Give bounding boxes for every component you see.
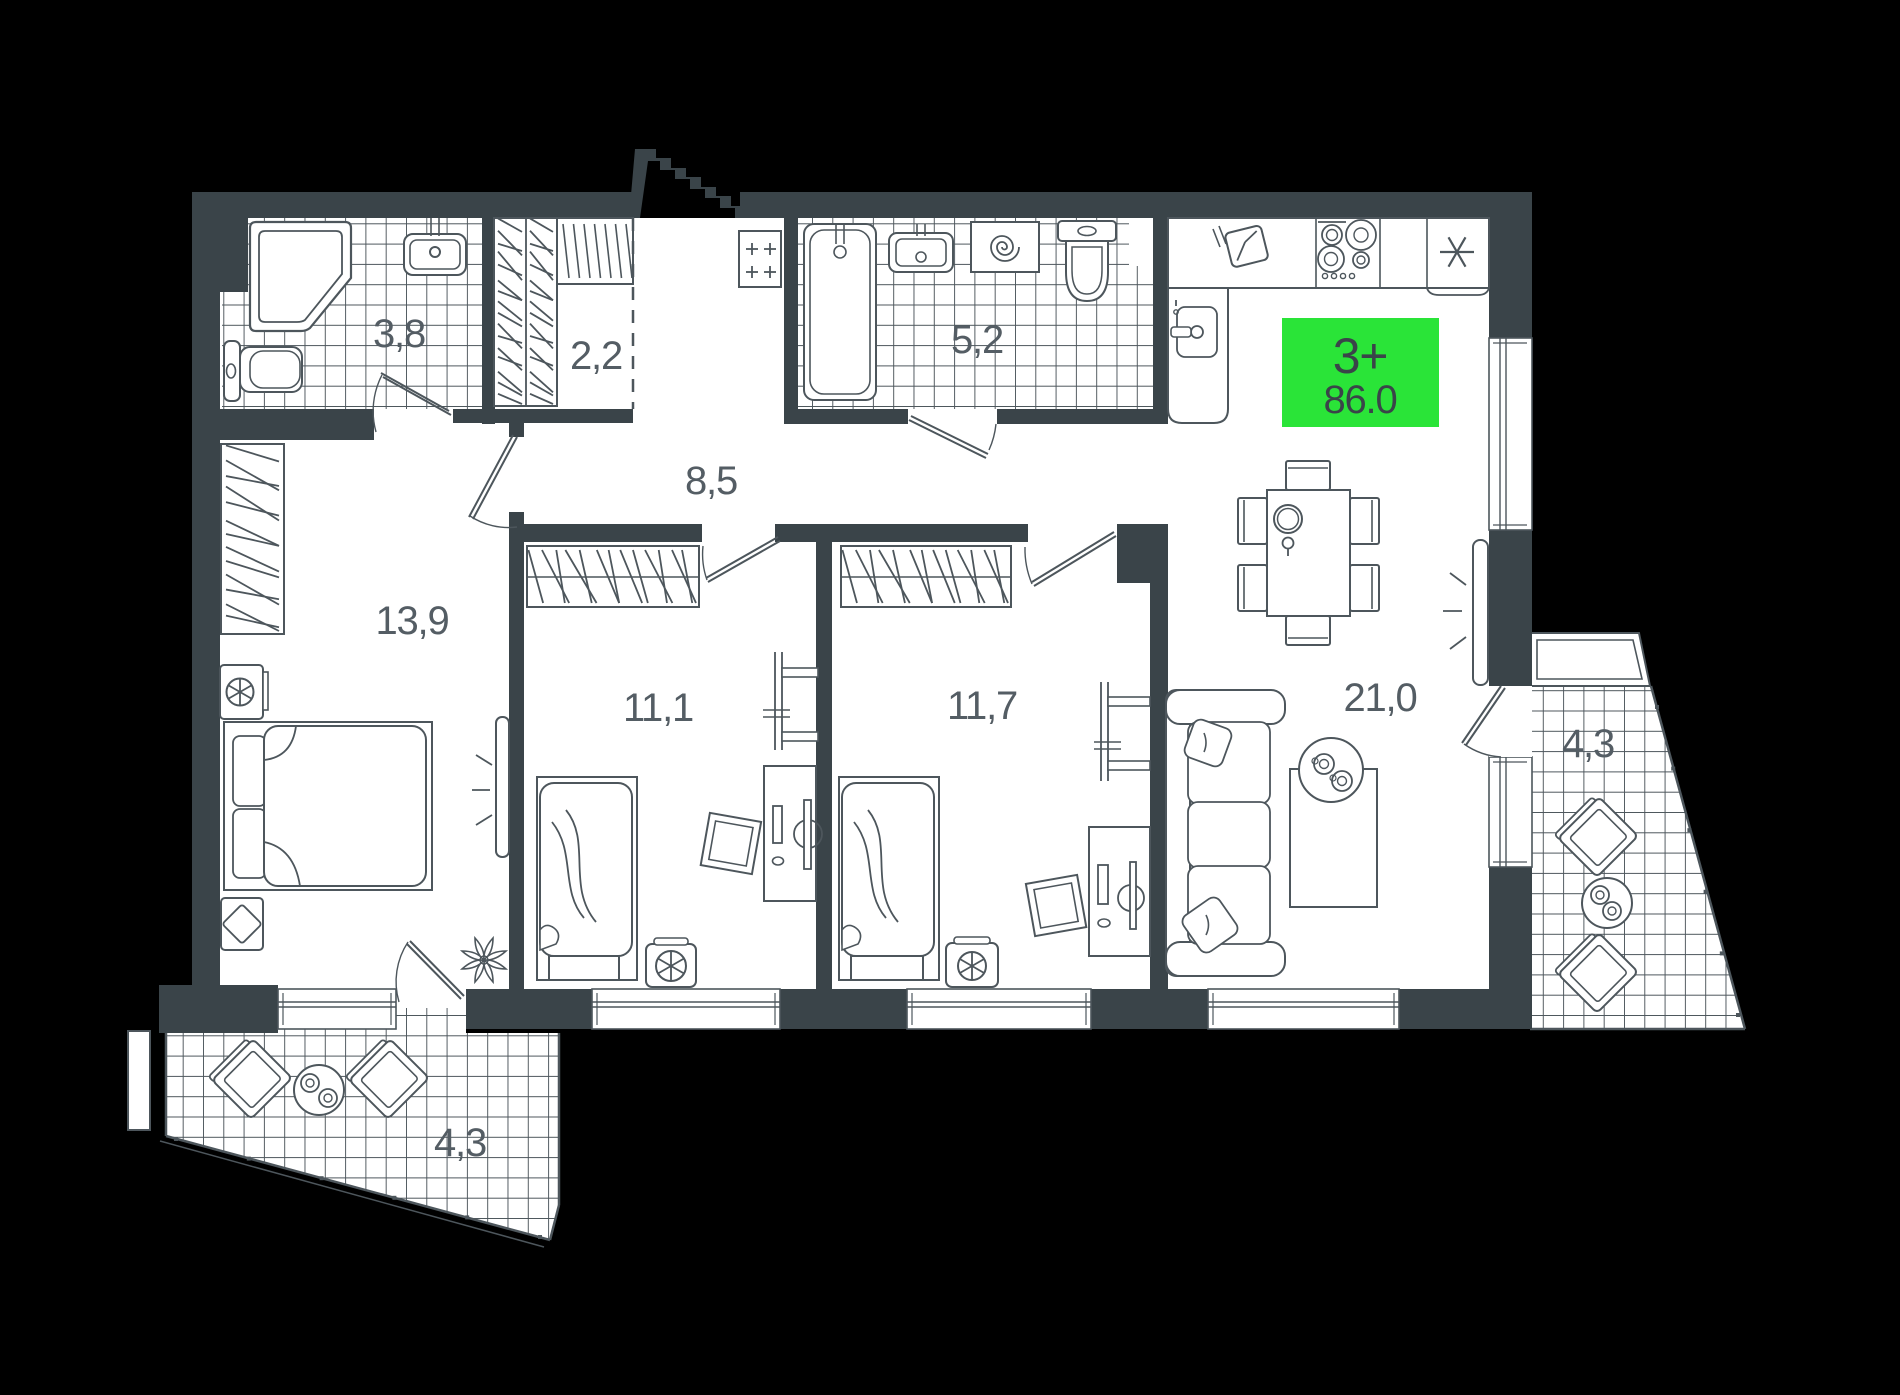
svg-text:3,8: 3,8 <box>373 312 425 356</box>
svg-text:5,2: 5,2 <box>951 318 1003 362</box>
svg-text:11,1: 11,1 <box>623 686 693 730</box>
svg-text:86.0: 86.0 <box>1323 378 1396 422</box>
svg-text:11,7: 11,7 <box>947 684 1017 728</box>
svg-text:13,9: 13,9 <box>375 599 448 643</box>
svg-text:21,0: 21,0 <box>1343 676 1416 720</box>
svg-text:3+: 3+ <box>1333 328 1388 384</box>
svg-text:8,5: 8,5 <box>685 459 737 503</box>
svg-text:2,2: 2,2 <box>570 334 622 378</box>
svg-text:4,3: 4,3 <box>434 1121 486 1165</box>
svg-text:4,3: 4,3 <box>1562 722 1614 766</box>
